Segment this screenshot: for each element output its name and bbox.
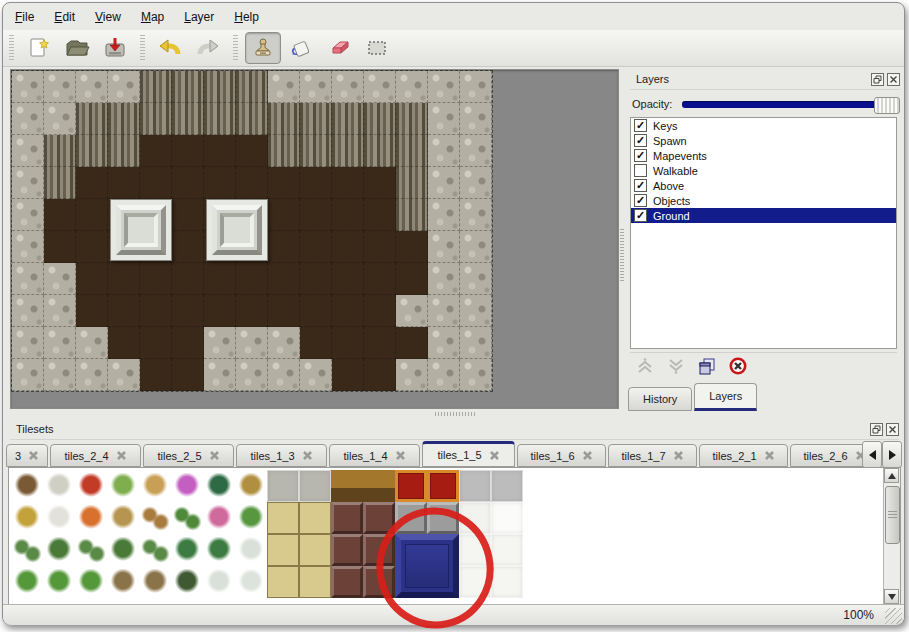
tab-close-icon[interactable] [489,450,500,461]
pedestal-tile [206,199,268,261]
tab-layers[interactable]: Layers [694,383,757,411]
opacity-row: Opacity: [632,94,898,114]
stamp-tool-icon [251,36,275,60]
map-tile [364,199,396,231]
tileset-tile[interactable] [459,502,491,534]
tab-tiles_2_1[interactable]: tiles_2_1 [699,444,788,467]
tileset-tile[interactable] [203,534,235,566]
map-tile [236,71,268,103]
toolbar [3,30,904,67]
layer-actions-bar [630,352,897,383]
tileset-tile[interactable] [203,502,235,534]
tileset-tile[interactable] [203,566,235,598]
map-tile [204,263,236,295]
map-tile [396,295,428,327]
map-tile [12,327,44,359]
tileset-grid [11,470,523,598]
layer-visibility-checkbox[interactable]: ✓ [634,134,647,147]
open-file-button[interactable] [59,32,95,64]
layer-row-spawn[interactable]: ✓Spawn [631,133,896,148]
float-panel-button[interactable] [871,73,884,86]
layer-visibility-checkbox[interactable]: ✓ [634,194,647,207]
tileset-tile[interactable] [107,534,139,566]
tab-history[interactable]: History [628,387,692,411]
layer-list: ✓Keys✓Spawn✓MapeventsWalkable✓Above✓Obje… [630,117,897,349]
vertical-splitter[interactable] [619,69,625,407]
layers-panel-title: Layers [636,73,868,85]
splitter-grip [620,229,624,281]
tab-tiles_1_7[interactable]: tiles_1_7 [608,444,697,467]
map-tile [332,71,364,103]
map-tile [44,199,76,231]
map-tile [268,71,300,103]
map-tile [268,295,300,327]
map-tile [332,135,364,167]
layer-visibility-checkbox[interactable]: ✓ [634,119,647,132]
lower-layer-button[interactable] [665,357,687,379]
tileset-tile[interactable] [267,470,299,502]
map-tile [172,295,204,327]
tileset-tile[interactable] [427,470,459,502]
map-tile [12,71,44,103]
map-tile [236,103,268,135]
map-tile [12,199,44,231]
fill-tool-icon [288,36,314,60]
map-tile [12,135,44,167]
tileset-tab-bar: 3tiles_2_4tiles_2_5tiles_1_3tiles_1_4til… [6,440,863,467]
arrow-left-icon [869,450,876,460]
map-tile [428,103,460,135]
eraser-tool-button[interactable] [321,32,357,64]
map-tile [172,263,204,295]
map-tile [44,103,76,135]
redo-icon [195,36,221,60]
map-tile [236,167,268,199]
tileset-tile[interactable] [299,566,331,598]
map-tile [364,359,396,391]
tileset-tile[interactable] [107,502,139,534]
tileset-tile[interactable] [139,470,171,502]
map-tile [204,327,236,359]
layer-name: Objects [653,195,690,207]
layers-panel-tabs: HistoryLayers [628,385,757,411]
map-tile [236,295,268,327]
map-tile [44,231,76,263]
map-canvas[interactable] [12,71,492,391]
tab-label: tiles_1_3 [250,450,294,462]
map-tile [12,103,44,135]
layer-name: Above [653,180,684,192]
tileset-tile[interactable] [331,502,363,534]
layer-row-ground[interactable]: ✓Ground [631,208,896,223]
tilesets-panel: Tilesets 3tiles_2_4tiles_2_5tiles_1_3til… [6,419,903,605]
layer-name: Spawn [653,135,687,147]
tileset-tile[interactable] [43,470,75,502]
tileset-tile[interactable] [459,534,491,566]
map-tile [76,135,108,167]
tileset-tile[interactable] [331,470,363,502]
map-tile [108,327,140,359]
pedestal-tile [110,199,172,261]
map-tile [364,103,396,135]
map-tile [108,263,140,295]
tileset-tile[interactable] [107,566,139,598]
map-tile [44,295,76,327]
tab-label: tiles_2_4 [64,450,108,462]
menu-item-help[interactable]: Help [234,10,259,24]
tab-label: tiles_1_7 [621,450,665,462]
tab-label: tiles_1_6 [530,450,574,462]
map-tile [140,327,172,359]
redo-button[interactable] [190,32,226,64]
tileset-tile[interactable] [299,534,331,566]
raise-layer-button[interactable] [634,357,656,379]
map-tile [172,199,204,231]
map-tile [12,359,44,391]
tab-scroll-left-button[interactable] [862,441,882,468]
map-tile [140,295,172,327]
map-tile [460,231,492,263]
tileset-tile[interactable] [139,566,171,598]
tileset-tile[interactable] [43,534,75,566]
map-tile [76,167,108,199]
tileset-tile[interactable] [171,470,203,502]
tab-tiles_1_5[interactable]: tiles_1_5 [422,441,515,467]
fill-tool-button[interactable] [283,32,319,64]
map-tile [204,71,236,103]
tileset-tile[interactable] [267,502,299,534]
tileset-tile[interactable] [331,534,363,566]
duplicate-layer-button[interactable] [696,357,718,379]
tab-tiles_2_6[interactable]: tiles_2_6 [790,444,863,467]
map-tile [364,167,396,199]
map-tile [300,263,332,295]
map-tile [108,103,140,135]
layer-name: Ground [653,210,690,222]
map-tile [44,71,76,103]
map-tile [428,263,460,295]
save-file-button[interactable] [97,32,133,64]
zoom-level: 100% [843,608,874,622]
map-tile [140,263,172,295]
tileset-tile[interactable] [171,534,203,566]
map-tile [140,167,172,199]
map-tile [460,135,492,167]
tab-close-icon[interactable] [582,450,593,461]
opacity-slider-handle[interactable] [874,97,900,114]
map-tile [460,359,492,391]
layer-visibility-checkbox[interactable]: ✓ [634,179,647,192]
duplicate-layer-icon [697,356,717,380]
tab-close-icon[interactable] [302,450,313,461]
tab-tiles_1_6[interactable]: tiles_1_6 [517,444,606,467]
tileset-scrollbar[interactable] [883,468,900,604]
map-tile [396,135,428,167]
map-tile [172,359,204,391]
tab-label: tiles_1_5 [437,449,481,461]
menu-item-layer[interactable]: Layer [184,10,214,24]
delete-layer-icon [728,356,748,380]
pedestal-top [220,213,254,247]
map-tile [332,231,364,263]
layers-panel: Layers Opacity: ✓Keys✓Spawn✓MapeventsWal… [626,69,904,415]
map-tile [428,199,460,231]
map-tile [268,199,300,231]
tileset-tile[interactable] [43,566,75,598]
tileset-tile[interactable] [235,534,267,566]
map-tile [236,359,268,391]
tileset-tile[interactable] [235,566,267,598]
map-tile [76,231,108,263]
tileset-tile[interactable] [427,502,459,534]
map-tile [236,327,268,359]
selected-tile-highlight[interactable] [395,534,459,598]
tileset-tile[interactable] [363,534,395,566]
map-tile [428,167,460,199]
tileset-tile[interactable] [299,502,331,534]
map-tile [332,327,364,359]
map-tile [332,359,364,391]
map-tile [172,103,204,135]
map-tile [76,359,108,391]
map-canvas-frame [10,69,619,409]
map-tile [140,71,172,103]
map-tile [364,263,396,295]
float-panel-button[interactable] [870,423,883,436]
tileset-tile[interactable] [363,566,395,598]
tileset-tile[interactable] [75,566,107,598]
map-tile [268,167,300,199]
map-tile [428,135,460,167]
map-tile [12,231,44,263]
tab-tiles_2_4[interactable]: tiles_2_4 [50,444,141,467]
close-panel-button[interactable] [886,423,899,436]
map-tile [460,295,492,327]
tileset-tile[interactable] [491,534,523,566]
tileset-tile[interactable] [203,470,235,502]
map-tile [76,199,108,231]
tileset-tile[interactable] [43,502,75,534]
tileset-tile[interactable] [11,502,43,534]
map-tile [108,359,140,391]
save-file-icon [103,36,127,60]
map-tile [396,231,428,263]
tileset-tile[interactable] [75,470,107,502]
tab-3[interactable]: 3 [6,444,48,467]
tab-close-icon[interactable] [209,450,220,461]
tileset-tile[interactable] [331,566,363,598]
map-tile [44,167,76,199]
tab-label: tiles_1_4 [343,450,387,462]
tileset-tile[interactable] [171,502,203,534]
map-tile [12,295,44,327]
map-tile [300,327,332,359]
arrow-right-icon [889,450,896,460]
screenshot-stage: FileEditViewMapLayerHelp Layers Opacity: [0,0,909,632]
tileset-tile[interactable] [491,470,523,502]
arrow-down-icon [888,594,896,600]
tab-tiles_2_5[interactable]: tiles_2_5 [143,444,234,467]
tileset-tile[interactable] [459,470,491,502]
map-tile [332,263,364,295]
map-tile [108,295,140,327]
map-tile [428,295,460,327]
select-tool-icon [365,36,389,60]
map-tile [204,103,236,135]
map-tile [428,359,460,391]
map-tile [76,71,108,103]
menu-item-edit[interactable]: Edit [54,10,75,24]
map-tile [76,295,108,327]
raise-layer-icon [635,356,655,380]
layer-visibility-checkbox[interactable] [634,164,647,177]
tab-close-icon[interactable] [116,450,127,461]
tab-close-icon[interactable] [764,450,775,461]
window-resize-grip[interactable] [885,608,902,624]
layer-visibility-checkbox[interactable]: ✓ [634,149,647,162]
tileset-tile[interactable] [363,502,395,534]
map-tile [396,359,428,391]
map-tile [172,327,204,359]
layer-row-above[interactable]: ✓Above [631,178,896,193]
menu-item-file[interactable]: File [15,10,34,24]
tileset-tile[interactable] [11,470,43,502]
map-tile [108,135,140,167]
map-tile [76,263,108,295]
map-tile [204,359,236,391]
map-tile [268,359,300,391]
map-tile [172,167,204,199]
map-tile [44,327,76,359]
tab-label: tiles_2_1 [712,450,756,462]
map-tile [332,199,364,231]
opacity-label: Opacity: [632,98,682,110]
tileset-tile[interactable] [75,502,107,534]
tileset-tile[interactable] [171,566,203,598]
map-tile [268,263,300,295]
scroll-down-button[interactable] [884,589,899,604]
map-tile [428,327,460,359]
layer-visibility-checkbox[interactable]: ✓ [634,209,647,222]
undo-button[interactable] [152,32,188,64]
stamp-tool-button[interactable] [245,32,281,64]
tileset-tile[interactable] [107,470,139,502]
tileset-tile[interactable] [363,470,395,502]
map-tile [332,103,364,135]
layer-row-keys[interactable]: ✓Keys [631,118,896,133]
map-tile [364,295,396,327]
delete-layer-button[interactable] [727,357,749,379]
tileset-tile[interactable] [267,566,299,598]
undo-icon [157,36,183,60]
tileset-tile[interactable] [459,566,491,598]
tileset-tile[interactable] [235,470,267,502]
map-tile [204,135,236,167]
tileset-tile[interactable] [491,502,523,534]
tileset-tile[interactable] [11,534,43,566]
close-panel-button[interactable] [887,73,900,86]
map-tile [364,135,396,167]
arrow-up-icon [888,473,896,479]
opacity-slider[interactable] [682,101,898,108]
tileset-tile[interactable] [235,502,267,534]
tileset-tile[interactable] [267,534,299,566]
layers-panel-titlebar: Layers [630,69,900,90]
map-tile [364,231,396,263]
map-tile [172,231,204,263]
map-tile [204,295,236,327]
map-tile [460,167,492,199]
tileset-content[interactable] [8,467,901,605]
menu-bar: FileEditViewMapLayerHelp [3,5,904,29]
pedestal-bevel [212,205,262,255]
layer-row-objects[interactable]: ✓Objects [631,193,896,208]
map-tile [396,167,428,199]
tileset-tile[interactable] [491,566,523,598]
tab-tiles_1_4[interactable]: tiles_1_4 [329,444,420,467]
map-tile [108,167,140,199]
map-tile [396,327,428,359]
map-tile [364,327,396,359]
tab-scroll-right-button[interactable] [882,441,902,468]
map-tile [236,135,268,167]
map-tile [300,199,332,231]
map-tile [460,71,492,103]
tileset-tile[interactable] [139,502,171,534]
layer-name: Walkable [653,165,698,177]
new-file-button[interactable] [21,32,57,64]
layer-row-mapevents[interactable]: ✓Mapevents [631,148,896,163]
menu-item-view[interactable]: View [95,10,121,24]
status-bar: 100% [3,604,904,625]
lower-layer-icon [666,356,686,380]
tileset-tile[interactable] [139,534,171,566]
eraser-tool-icon [326,36,352,60]
select-tool-button[interactable] [359,32,395,64]
tileset-tile[interactable] [395,502,427,534]
tab-close-icon[interactable] [28,450,39,461]
tileset-tile[interactable] [299,470,331,502]
map-tile [332,167,364,199]
map-tile [172,135,204,167]
scroll-up-button[interactable] [884,468,899,483]
map-tile [12,167,44,199]
splitter-grip [435,412,475,416]
scrollbar-thumb[interactable] [885,486,900,544]
tileset-tile[interactable] [395,470,427,502]
map-tile [140,103,172,135]
map-tile [236,263,268,295]
tab-close-icon[interactable] [673,450,684,461]
map-tile [300,167,332,199]
toolbar-grip [140,35,145,61]
tileset-tile[interactable] [11,566,43,598]
tab-tiles_1_3[interactable]: tiles_1_3 [236,444,327,467]
toolbar-grip [233,35,238,61]
map-tile [268,103,300,135]
menu-item-map[interactable]: Map [141,10,164,24]
tileset-tile[interactable] [75,534,107,566]
map-tile [12,263,44,295]
map-tile [428,71,460,103]
map-tile [76,103,108,135]
map-tile [460,199,492,231]
layer-row-walkable[interactable]: Walkable [631,163,896,178]
map-tile [300,231,332,263]
map-tile [300,71,332,103]
tab-close-icon[interactable] [395,450,406,461]
map-tile [428,231,460,263]
